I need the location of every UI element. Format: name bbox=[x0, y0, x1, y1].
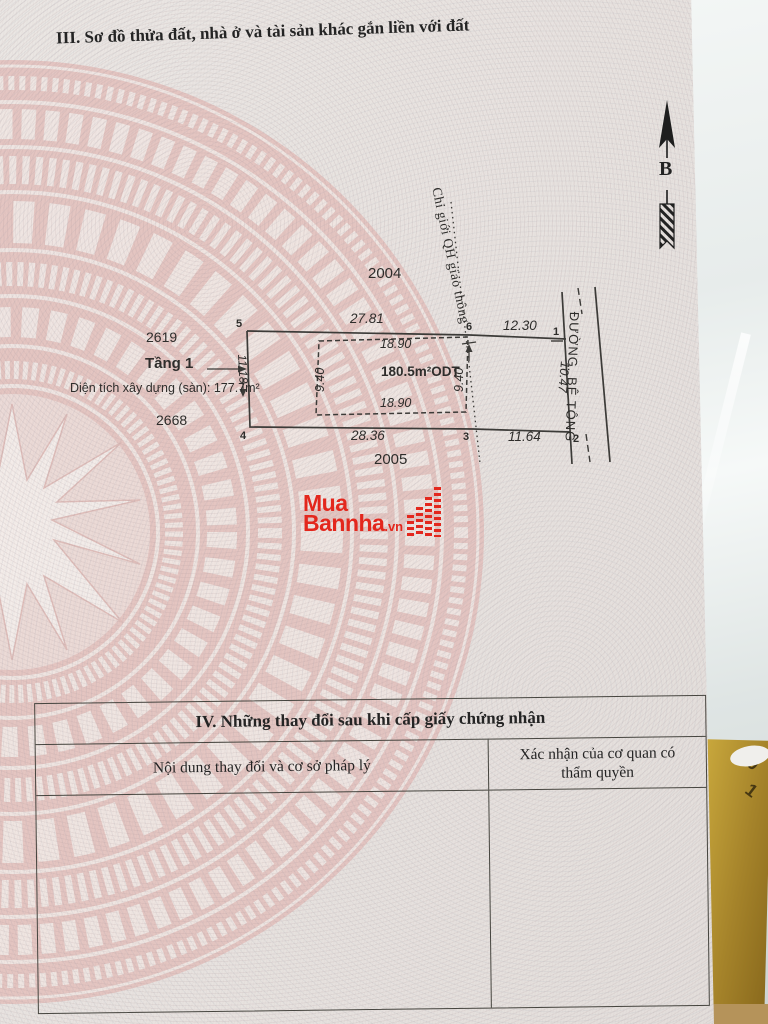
certificate-page: III. Sơ đồ thửa đất, nhà ở và tài sản kh… bbox=[0, 0, 714, 1024]
dim-bottom-left: 28.36 bbox=[351, 428, 385, 443]
dim-bottom-right: 11.64 bbox=[508, 429, 541, 444]
muabannha-watermark: Mua Bannha.vn bbox=[303, 487, 441, 537]
corner-5: 5 bbox=[236, 318, 242, 330]
table-header-row: Nội dung thay đổi và cơ sở pháp lý Xác n… bbox=[36, 737, 707, 796]
section4-table: IV. Những thay đổi sau khi cấp giấy chứn… bbox=[34, 695, 710, 1014]
col1-empty-cell bbox=[36, 791, 492, 1014]
logo-line2: Bannha bbox=[303, 510, 384, 536]
col2-header: Xác nhận của cơ quan có thẩm quyền bbox=[489, 737, 707, 790]
floor-area-label: Diện tích xây dựng (sàn): 177.7m² bbox=[70, 381, 260, 395]
dim-inner-top: 18.90 bbox=[380, 337, 411, 351]
building-bar bbox=[416, 507, 423, 537]
photo-scene: 10 1 bbox=[0, 0, 768, 1024]
logo-suffix: .vn bbox=[384, 519, 403, 534]
dim-left-edge: 11.18 bbox=[235, 354, 251, 384]
building-bar bbox=[434, 487, 441, 537]
col2-empty-cell bbox=[489, 788, 709, 1008]
planning-boundary-label: Chỉ giới QH giao thông bbox=[428, 186, 473, 325]
parcel-number-2004: 2004 bbox=[368, 265, 401, 282]
parcel-number-2668: 2668 bbox=[156, 412, 187, 428]
dim-inner-left: 9.40 bbox=[313, 368, 327, 392]
parcel-number-2619: 2619 bbox=[146, 329, 177, 345]
dim-inner-right: 9.40 bbox=[452, 368, 466, 392]
section3-title: III. Sơ đồ thửa đất, nhà ở và tài sản kh… bbox=[56, 12, 596, 49]
road-label: ĐƯỜNG. BÊ TÔNG bbox=[562, 311, 582, 442]
compass-north-label: B bbox=[659, 158, 672, 181]
box-label-text-2: 1 bbox=[741, 779, 762, 802]
page-content: III. Sơ đồ thửa đất, nhà ở và tài sản kh… bbox=[0, 0, 714, 1024]
col1-header: Nội dung thay đổi và cơ sở pháp lý bbox=[36, 740, 490, 796]
dim-inner-bottom: 18.90 bbox=[380, 396, 411, 410]
corner-4: 4 bbox=[240, 430, 246, 442]
corner-1: 1 bbox=[553, 326, 559, 338]
parcel-number-2005: 2005 bbox=[374, 451, 407, 468]
buildings-icon bbox=[407, 487, 441, 537]
table-body-row bbox=[36, 788, 709, 1013]
parcel-area-label: 180.5m²ODT bbox=[381, 364, 460, 379]
dim-top-right: 12.30 bbox=[503, 318, 537, 333]
floor-label: Tầng 1 bbox=[145, 355, 193, 372]
muabannha-text: Mua Bannha.vn bbox=[303, 493, 403, 537]
building-bar bbox=[407, 515, 414, 537]
building-bar bbox=[425, 497, 432, 537]
corner-3: 3 bbox=[463, 431, 469, 443]
dim-top-left: 27.81 bbox=[350, 311, 384, 326]
